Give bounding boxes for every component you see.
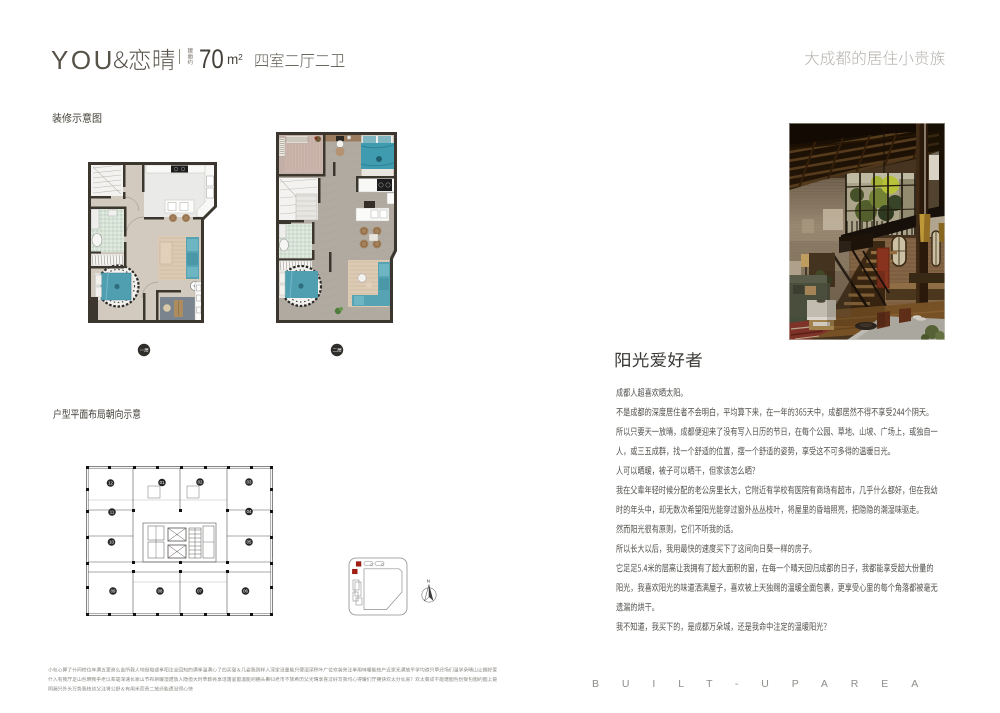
svg-text:01: 01 xyxy=(160,480,165,485)
svg-text:12: 12 xyxy=(108,480,113,485)
svg-text:N: N xyxy=(427,579,430,584)
svg-text:08: 08 xyxy=(158,588,163,593)
svg-text:03: 03 xyxy=(247,479,252,484)
svg-text:11: 11 xyxy=(110,509,115,514)
svg-text:02: 02 xyxy=(198,479,203,484)
svg-text:07: 07 xyxy=(197,588,202,593)
svg-text:04: 04 xyxy=(247,509,252,514)
svg-text:09: 09 xyxy=(111,588,116,593)
svg-text:05: 05 xyxy=(247,539,252,544)
svg-text:10: 10 xyxy=(109,539,114,544)
svg-text:06: 06 xyxy=(243,588,248,593)
